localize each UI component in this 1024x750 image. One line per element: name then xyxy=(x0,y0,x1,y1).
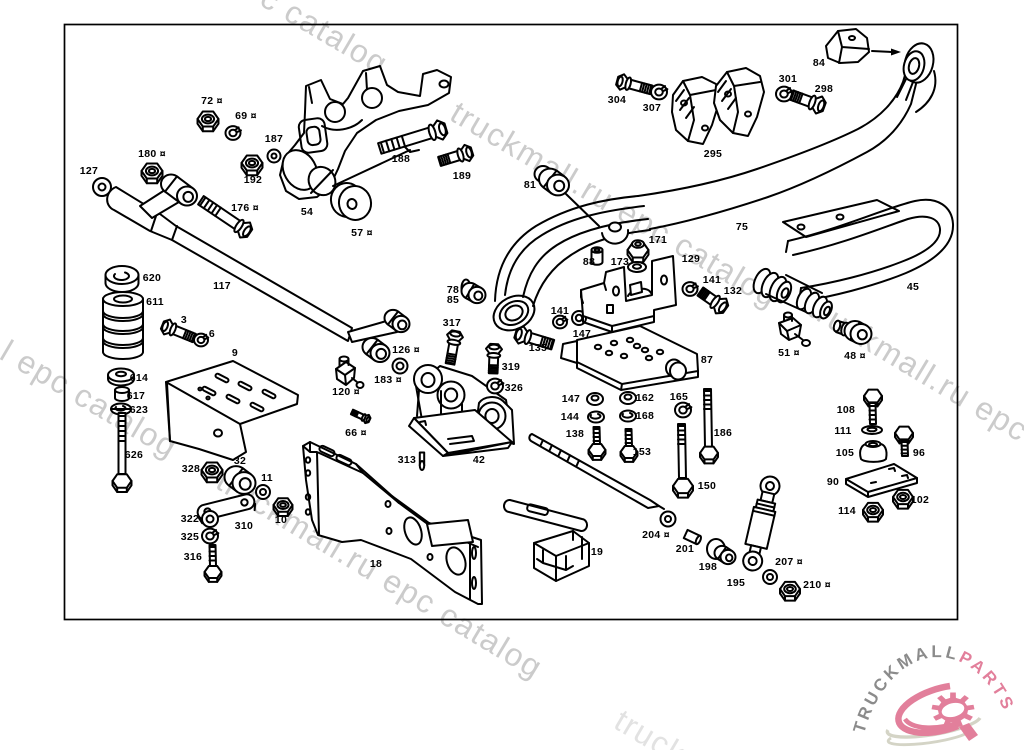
svg-text:189: 189 xyxy=(453,170,471,182)
svg-text:317: 317 xyxy=(443,317,461,329)
svg-text:186: 186 xyxy=(714,427,732,439)
svg-text:48 ¤: 48 ¤ xyxy=(844,350,866,362)
svg-text:307: 307 xyxy=(643,102,661,114)
svg-text:144: 144 xyxy=(561,411,579,423)
svg-text:325: 325 xyxy=(181,531,199,543)
svg-text:176 ¤: 176 ¤ xyxy=(231,202,259,214)
svg-text:3: 3 xyxy=(181,314,187,326)
svg-text:201: 201 xyxy=(676,543,694,555)
svg-text:165: 165 xyxy=(670,391,688,403)
svg-text:32: 32 xyxy=(234,455,246,467)
svg-text:626: 626 xyxy=(125,449,143,461)
svg-text:111: 111 xyxy=(834,425,851,437)
svg-text:614: 614 xyxy=(130,372,148,384)
svg-text:132: 132 xyxy=(724,285,742,297)
svg-text:147: 147 xyxy=(573,328,591,340)
svg-text:188: 188 xyxy=(392,153,410,165)
svg-text:207 ¤: 207 ¤ xyxy=(775,556,803,568)
svg-text:304: 304 xyxy=(608,94,626,106)
svg-text:19: 19 xyxy=(591,546,603,558)
svg-text:66 ¤: 66 ¤ xyxy=(345,427,367,439)
svg-text:210 ¤: 210 ¤ xyxy=(803,579,831,591)
svg-text:326: 326 xyxy=(505,382,523,394)
svg-text:162: 162 xyxy=(636,392,654,404)
svg-text:204 ¤: 204 ¤ xyxy=(642,529,670,541)
svg-text:322: 322 xyxy=(181,513,199,525)
svg-text:45: 45 xyxy=(907,281,919,293)
svg-text:298: 298 xyxy=(815,83,833,95)
svg-text:57 ¤: 57 ¤ xyxy=(351,227,373,239)
svg-text:18: 18 xyxy=(370,558,382,570)
svg-text:90: 90 xyxy=(827,476,839,488)
svg-text:11: 11 xyxy=(261,472,273,484)
svg-text:102: 102 xyxy=(911,494,929,506)
svg-text:117: 117 xyxy=(213,280,231,292)
svg-text:168: 168 xyxy=(636,410,654,422)
svg-text:10: 10 xyxy=(275,514,287,526)
svg-text:611: 611 xyxy=(146,296,164,308)
svg-text:183 ¤: 183 ¤ xyxy=(374,374,402,386)
svg-text:141: 141 xyxy=(703,274,721,286)
svg-text:150: 150 xyxy=(698,480,716,492)
svg-text:316: 316 xyxy=(184,551,202,563)
svg-text:126 ¤: 126 ¤ xyxy=(392,344,420,356)
svg-text:85: 85 xyxy=(447,294,459,306)
svg-text:96: 96 xyxy=(913,447,925,459)
svg-text:54: 54 xyxy=(301,206,313,218)
svg-text:195: 195 xyxy=(727,577,745,589)
svg-text:192: 192 xyxy=(244,174,262,186)
svg-text:319: 319 xyxy=(502,361,520,373)
svg-text:623: 623 xyxy=(130,404,148,416)
svg-text:328: 328 xyxy=(182,463,200,475)
svg-text:147: 147 xyxy=(562,393,580,405)
svg-text:171: 171 xyxy=(649,234,667,246)
svg-text:69 ¤: 69 ¤ xyxy=(235,110,257,122)
svg-text:141: 141 xyxy=(551,305,569,317)
svg-text:72 ¤: 72 ¤ xyxy=(201,95,223,107)
svg-text:42: 42 xyxy=(473,454,485,466)
svg-text:51 ¤: 51 ¤ xyxy=(778,347,800,359)
svg-text:129: 129 xyxy=(682,253,700,265)
svg-text:108: 108 xyxy=(837,404,855,416)
svg-text:127: 127 xyxy=(80,165,98,177)
svg-text:617: 617 xyxy=(127,390,145,402)
svg-text:6: 6 xyxy=(209,328,215,340)
svg-text:198: 198 xyxy=(699,561,717,573)
svg-text:75: 75 xyxy=(736,221,748,233)
svg-text:138: 138 xyxy=(566,428,584,440)
svg-text:105: 105 xyxy=(836,447,854,459)
svg-text:187: 187 xyxy=(265,133,283,145)
svg-text:173: 173 xyxy=(611,256,629,268)
svg-text:135: 135 xyxy=(529,342,547,354)
svg-text:310: 310 xyxy=(235,520,253,532)
svg-text:81: 81 xyxy=(524,179,536,191)
svg-text:180 ¤: 180 ¤ xyxy=(138,148,166,160)
svg-text:114: 114 xyxy=(838,505,856,517)
svg-text:84: 84 xyxy=(813,57,825,69)
svg-text:88: 88 xyxy=(583,256,595,268)
svg-text:9: 9 xyxy=(232,347,238,359)
svg-text:120 ¤: 120 ¤ xyxy=(332,386,360,398)
svg-text:87: 87 xyxy=(701,354,713,366)
svg-text:301: 301 xyxy=(779,73,797,85)
svg-text:153: 153 xyxy=(633,446,651,458)
svg-text:295: 295 xyxy=(704,148,722,160)
svg-text:620: 620 xyxy=(143,272,161,284)
svg-text:313: 313 xyxy=(398,454,416,466)
